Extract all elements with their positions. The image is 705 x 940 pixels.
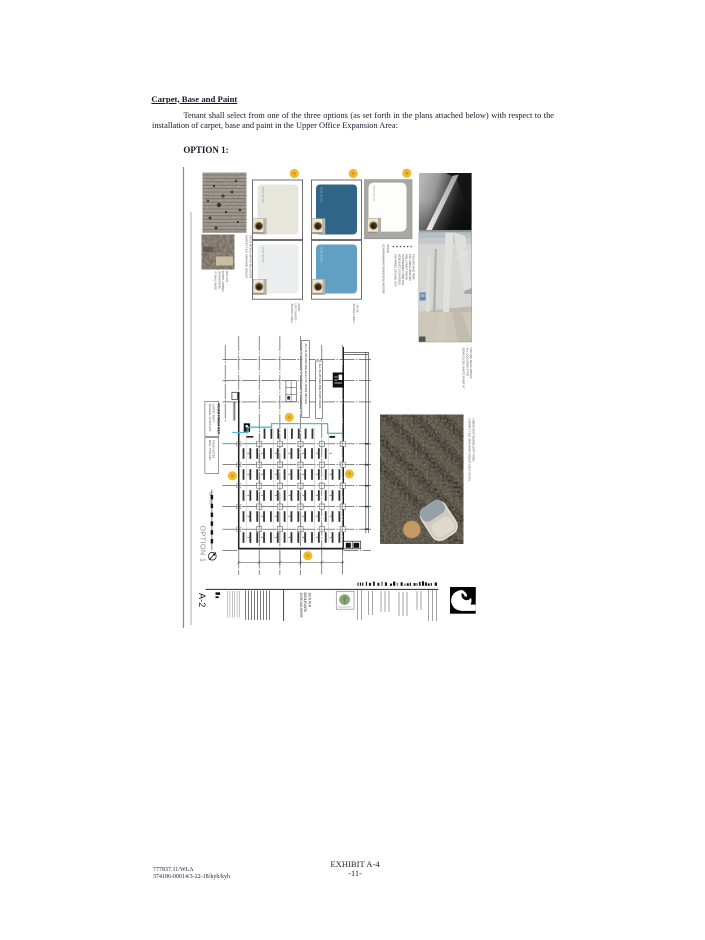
svg-text:BOULEVARD: BOULEVARD xyxy=(303,593,307,613)
svg-text:SIX PANEL CEILING SYS: SIX PANEL CEILING SYS xyxy=(394,254,398,287)
svg-text:ALL COLUMNS (TYP): ALL COLUMNS (TYP) xyxy=(465,348,469,377)
svg-text:OPTION 1: OPTION 1 xyxy=(199,526,208,563)
svg-text:ACCENT WALL: ACCENT WALL xyxy=(352,304,356,324)
svg-text:ACM DUCTS EXPOSED: ACM DUCTS EXPOSED xyxy=(397,254,401,285)
svg-text:GB959 GRIT BLEND QTR TURN: GB959 GRIT BLEND QTR TURN xyxy=(471,419,475,462)
svg-text:ACCENT WALL: ACCENT WALL xyxy=(290,304,294,324)
svg-text:ALL SLAB CEILING ELEV AT OPEN: ALL SLAB CEILING ELEV AT OPEN OFFICE xyxy=(304,344,308,404)
svg-text:ROOM FINISH KEY: ROOM FINISH KEY xyxy=(216,404,220,435)
svg-text:CARPET TILE: MOHAWK GROUP: CARPET TILE: MOHAWK GROUP xyxy=(245,235,249,278)
svg-text:SUSPENDED TRIM COL: SUSPENDED TRIM COL xyxy=(401,254,405,286)
svg-text:DKY 234: DKY 234 xyxy=(225,271,229,283)
svg-text:WHITE: WHITE xyxy=(386,244,390,253)
svg-text:CARPET PAINT: CARPET PAINT xyxy=(212,404,216,423)
svg-text:BENJ. MOORE: BENJ. MOORE xyxy=(261,187,263,203)
svg-text:GENERAL NOTES KEY: GENERAL NOTES KEY xyxy=(208,404,212,432)
svg-text:1/8" = 1'-0": 1/8" = 1'-0" xyxy=(208,492,212,506)
svg-text:FINISH NOTES: FINISH NOTES xyxy=(212,440,216,458)
svg-text:24X24 MODULAR INSTALLATION: 24X24 MODULAR INSTALLATION xyxy=(248,235,252,278)
svg-text:WALL PAINT FINISH: WALL PAINT FINISH xyxy=(405,254,409,280)
svg-text:BENJ. MOORE: BENJ. MOORE xyxy=(320,247,322,263)
svg-text:BENJ. MOORE: BENJ. MOORE xyxy=(320,187,322,203)
svg-text:SEMI GLOSS WHITE PAINT AT: SEMI GLOSS WHITE PAINT AT xyxy=(462,348,466,389)
svg-text:COLUMNS PAINTED: COLUMNS PAINTED xyxy=(408,254,412,281)
svg-text:LEFT WHITE /: LEFT WHITE / xyxy=(293,304,297,322)
svg-text:GRAY: GRAY xyxy=(297,304,301,312)
svg-text:4" WALL BASE: 4" WALL BASE xyxy=(214,271,218,290)
svg-text:SCANDINAVIAN DENIM BENJ MOORE: SCANDINAVIAN DENIM BENJ MOORE xyxy=(382,244,386,294)
svg-text:BENJ. MOORE: BENJ. MOORE xyxy=(372,186,374,202)
svg-text:CARPET TILE: MOHAWK GROUP LEES: CARPET TILE: MOHAWK GROUP LEES 24X24 xyxy=(468,419,472,481)
svg-text:10960 WILSHIRE: 10960 WILSHIRE xyxy=(299,593,303,618)
svg-text:ALL SLAB CEILING PAINT DECK: ALL SLAB CEILING PAINT DECK xyxy=(318,364,322,409)
svg-text:BENJ. MOORE: BENJ. MOORE xyxy=(261,247,263,263)
svg-text:BURNT UMBER: BURNT UMBER xyxy=(221,271,225,291)
svg-text:JOHNSONITE: JOHNSONITE xyxy=(217,271,221,289)
svg-text:- BLUE: - BLUE xyxy=(355,304,359,313)
svg-text:CEILING AND TRIM: CEILING AND TRIM xyxy=(411,254,415,280)
svg-text:A-2: A-2 xyxy=(197,593,207,607)
svg-text:WALL TYPE KEY: WALL TYPE KEY xyxy=(208,440,212,460)
svg-text:18TH FLR: 18TH FLR xyxy=(307,593,311,608)
svg-text:CEILING DECK ABOVE: CEILING DECK ABOVE xyxy=(469,348,473,379)
